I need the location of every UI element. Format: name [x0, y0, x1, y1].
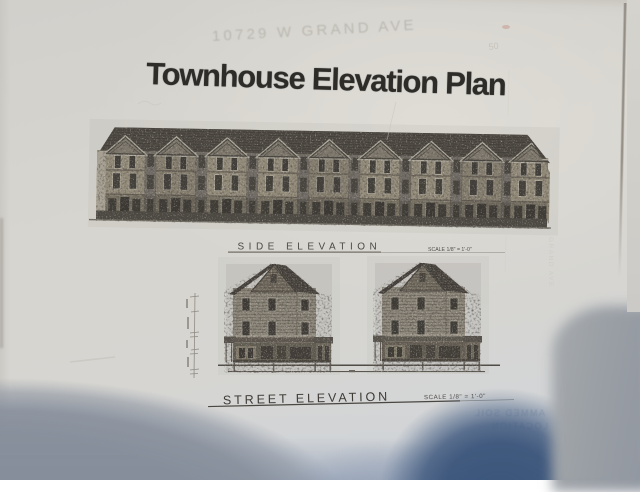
svg-text:GRAND AVE: GRAND AVE [547, 237, 554, 288]
svg-text:SCALE 1/8" = 1'-0": SCALE 1/8" = 1'-0" [428, 247, 472, 253]
svg-text:50: 50 [488, 41, 499, 52]
svg-text:SCALE 1/8" = 1'-0": SCALE 1/8" = 1'-0" [424, 393, 486, 401]
svg-text:SIDE ELEVATION: SIDE ELEVATION [238, 241, 382, 252]
